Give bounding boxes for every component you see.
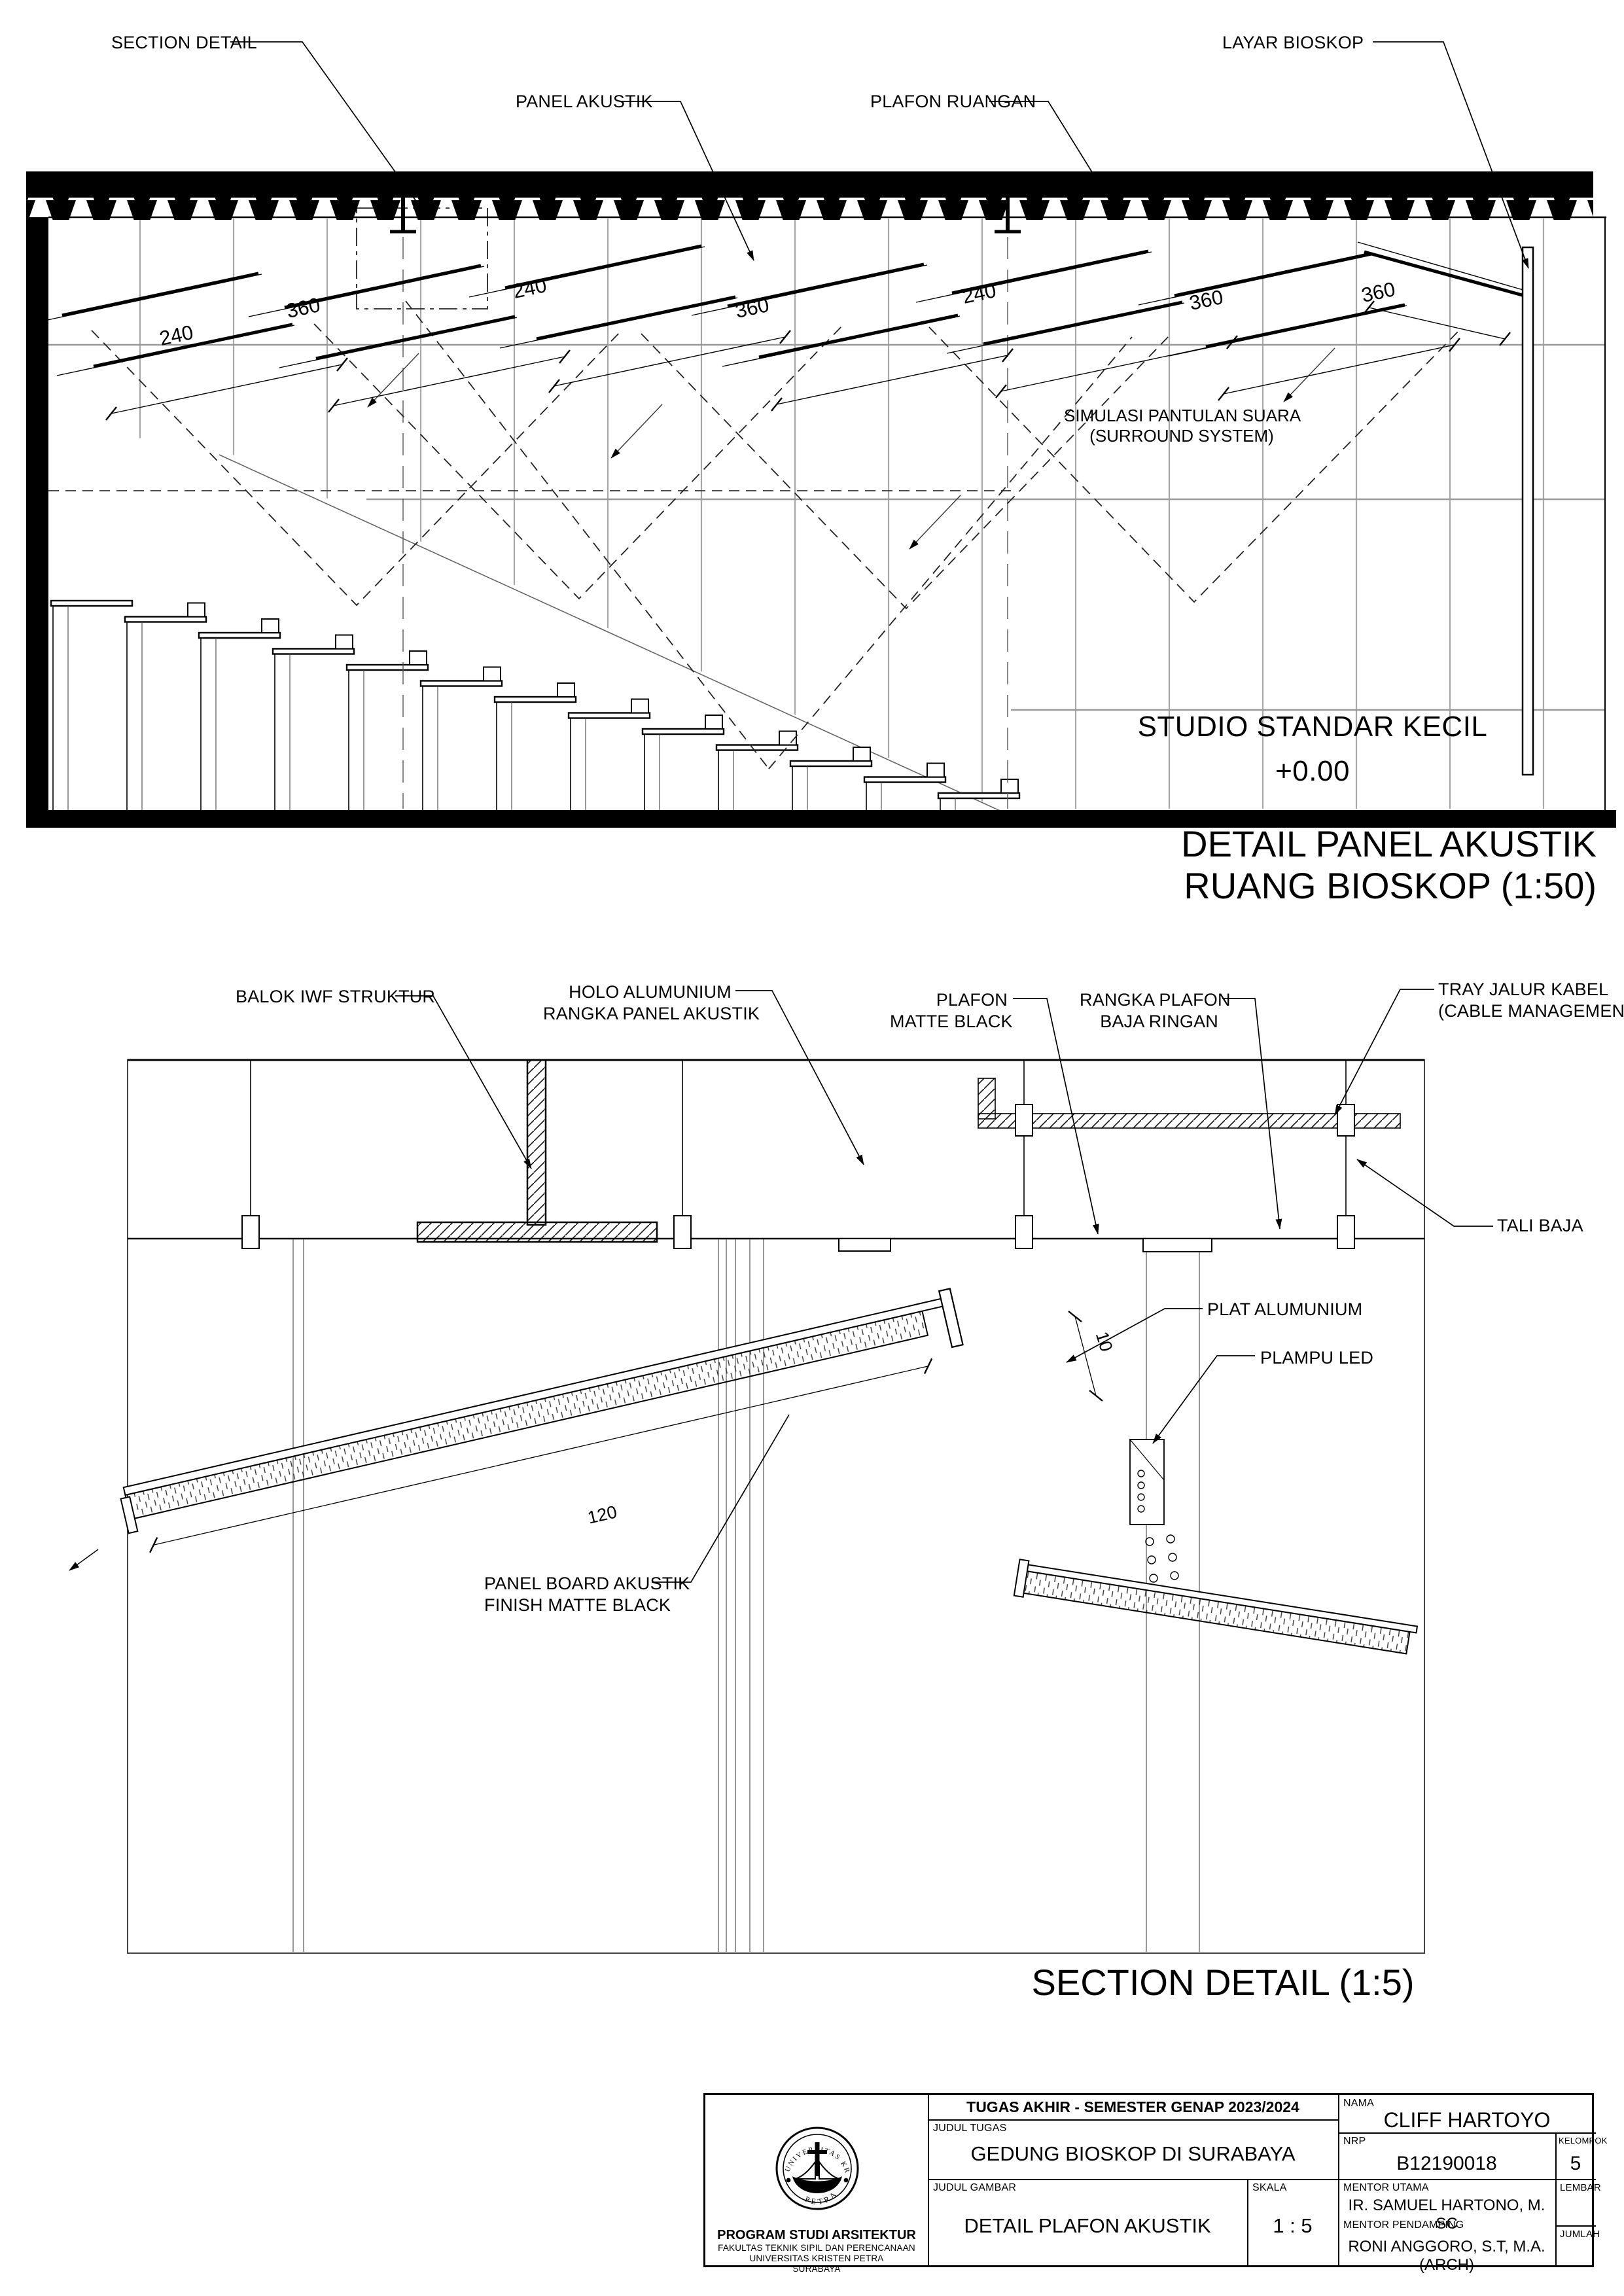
tb-institution-line4: SURABAYA <box>707 2264 927 2274</box>
callout-plafon-matte-black: PLAFON MATTE BLACK <box>890 989 1008 1033</box>
note-line2: (SURROUND SYSTEM) <box>1064 426 1299 446</box>
callout-balok-iwf: BALOK IWF STRUKTUR <box>236 987 435 1007</box>
callout-rangka-line1: RANGKA PLAFON <box>1080 989 1218 1011</box>
tb-institution-line1: PROGRAM STUDI ARSITEKTUR <box>707 2228 927 2243</box>
callout-plafon-line1: PLAFON <box>890 989 1008 1011</box>
tb-mentor-utama-label: MENTOR UTAMA <box>1343 2182 1429 2194</box>
note-sound-simulation: SIMULASI PANTULAN SUARA (SURROUND SYSTEM… <box>1064 406 1299 446</box>
title-block: TUGAS AKHIR - SEMESTER GENAP 2023/2024 J… <box>703 2093 1594 2267</box>
note-line1: SIMULASI PANTULAN SUARA <box>1064 406 1299 426</box>
callout-panel-akustik: PANEL AKUSTIK <box>516 92 653 112</box>
tb-skala: 1 : 5 <box>1247 2214 1338 2238</box>
tb-judul-tugas: GEDUNG BIOSKOP DI SURABAYA <box>928 2142 1338 2166</box>
drawing1-title-line1: DETAIL PANEL AKUSTIK <box>1139 823 1597 865</box>
drawing-sheet: SECTION DETAIL PANEL AKUSTIK PLAFON RUAN… <box>0 0 1624 2296</box>
callout-board-line2: FINISH MATTE BLACK <box>484 1595 648 1616</box>
tb-judul-gambar: DETAIL PLAFON AKUSTIK <box>928 2214 1247 2238</box>
callout-holo-line2: RANGKA PANEL AKUSTIK <box>543 1003 732 1025</box>
tb-mentor-pendamping-label: MENTOR PENDAMPING <box>1343 2219 1464 2231</box>
tb-mentor-pendamping: RONI ANGGORO, S.T, M.A. (ARCH) <box>1338 2238 1555 2274</box>
room-label: STUDIO STANDAR KECIL +0.00 <box>1116 711 1509 788</box>
callout-tali-baja: TALI BAJA <box>1497 1216 1583 1236</box>
callout-panel-board: PANEL BOARD AKUSTIK FINISH MATTE BLACK <box>484 1573 648 1616</box>
callout-plafon-line2: MATTE BLACK <box>890 1011 1008 1033</box>
tb-jumlah-label: JUMLAH <box>1560 2229 1600 2240</box>
callout-holo-line1: HOLO ALUMUNIUM <box>543 981 732 1003</box>
drawing1-title-line2: RUANG BIOSKOP (1:50) <box>1139 865 1597 907</box>
tb-nrp: B12190018 <box>1338 2153 1555 2175</box>
tb-kelompok-label: KELOMPOK <box>1559 2136 1608 2146</box>
callout-holo-alumunium: HOLO ALUMUNIUM RANGKA PANEL AKUSTIK <box>543 981 732 1025</box>
tb-skala-label: SKALA <box>1252 2182 1287 2194</box>
callout-layar-bioskop: LAYAR BIOSKOP <box>1222 33 1364 53</box>
tb-institution-line3: UNIVERSITAS KRISTEN PETRA <box>707 2253 927 2263</box>
tb-institution-line2: FAKULTAS TEKNIK SIPIL DAN PERENCANAAN <box>707 2243 927 2253</box>
floor-level: +0.00 <box>1116 755 1509 788</box>
tb-kelompok: 5 <box>1555 2153 1596 2175</box>
university-seal-logo: UNIVERSITAS KRISTEN PETRA <box>774 2125 860 2212</box>
callout-plafon-ruangan: PLAFON RUANGAN <box>870 92 1036 112</box>
callout-tray-line1: TRAY JALUR KABEL <box>1438 979 1624 1000</box>
callout-board-line1: PANEL BOARD AKUSTIK <box>484 1573 648 1595</box>
callout-plampu-led: PLAMPU LED <box>1260 1348 1373 1368</box>
callout-rangka-plafon: RANGKA PLAFON BAJA RINGAN <box>1080 989 1218 1033</box>
tb-nama: CLIFF HARTOYO <box>1338 2108 1596 2132</box>
tb-nrp-label: NRP <box>1343 2136 1366 2147</box>
tb-header: TUGAS AKHIR - SEMESTER GENAP 2023/2024 <box>928 2098 1338 2116</box>
callout-tray-line2: (CABLE MANAGEMENT) <box>1438 1000 1624 1022</box>
drawing-linework <box>0 0 1624 2296</box>
tb-lembar-label: LEMBAR <box>1560 2182 1601 2193</box>
tb-judul-gambar-label: JUDUL GAMBAR <box>933 2182 1016 2194</box>
callout-plat-alumunium: PLAT ALUMUNIUM <box>1207 1299 1362 1320</box>
callout-tray-kabel: TRAY JALUR KABEL (CABLE MANAGEMENT) <box>1438 979 1624 1022</box>
callout-rangka-line2: BAJA RINGAN <box>1080 1011 1218 1033</box>
drawing2-title: SECTION DETAIL (1:5) <box>1019 1962 1426 2004</box>
drawing1-title: DETAIL PANEL AKUSTIK RUANG BIOSKOP (1:50… <box>1139 823 1597 907</box>
callout-section-detail: SECTION DETAIL <box>111 33 257 53</box>
room-name: STUDIO STANDAR KECIL <box>1116 711 1509 743</box>
tb-judul-tugas-label: JUDUL TUGAS <box>933 2123 1006 2134</box>
